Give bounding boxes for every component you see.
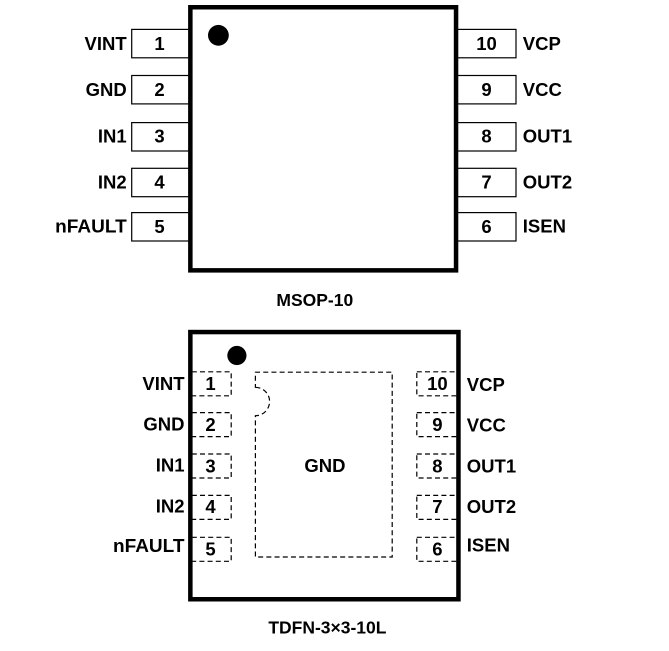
svg-text:nFAULT: nFAULT [113, 535, 185, 556]
svg-text:1: 1 [154, 33, 164, 54]
svg-text:8: 8 [432, 455, 442, 476]
svg-text:nFAULT: nFAULT [55, 215, 127, 236]
svg-text:7: 7 [432, 496, 442, 517]
svg-text:MSOP-10: MSOP-10 [276, 290, 353, 310]
svg-text:VINT: VINT [85, 33, 128, 54]
svg-text:5: 5 [154, 216, 164, 237]
svg-text:VCC: VCC [523, 79, 562, 100]
svg-text:8: 8 [481, 126, 491, 147]
svg-text:7: 7 [481, 172, 491, 193]
svg-text:9: 9 [432, 414, 442, 435]
svg-text:4: 4 [205, 496, 216, 517]
svg-text:5: 5 [205, 539, 215, 560]
svg-text:VCC: VCC [467, 415, 506, 436]
svg-text:OUT1: OUT1 [467, 455, 516, 476]
svg-text:3: 3 [154, 126, 164, 147]
svg-text:4: 4 [154, 172, 165, 193]
svg-text:VCP: VCP [467, 374, 505, 395]
svg-text:IN2: IN2 [156, 495, 185, 516]
svg-text:GND: GND [86, 79, 127, 100]
svg-text:GND: GND [304, 455, 345, 476]
svg-text:IN2: IN2 [98, 172, 127, 193]
svg-text:ISEN: ISEN [523, 215, 566, 236]
svg-text:3: 3 [205, 455, 215, 476]
svg-text:2: 2 [154, 79, 164, 100]
svg-text:VINT: VINT [142, 373, 185, 394]
svg-text:10: 10 [427, 373, 448, 394]
svg-text:1: 1 [205, 373, 215, 394]
svg-text:6: 6 [481, 216, 491, 237]
svg-text:6: 6 [432, 539, 442, 560]
svg-text:OUT1: OUT1 [523, 126, 572, 147]
svg-text:OUT2: OUT2 [467, 496, 516, 517]
svg-text:10: 10 [476, 33, 497, 54]
svg-text:TDFN-3×3-10L: TDFN-3×3-10L [268, 617, 386, 637]
svg-text:IN1: IN1 [156, 455, 185, 476]
svg-text:GND: GND [143, 413, 184, 434]
svg-text:9: 9 [481, 79, 491, 100]
svg-text:OUT2: OUT2 [523, 172, 572, 193]
svg-text:VCP: VCP [523, 33, 561, 54]
svg-text:ISEN: ISEN [467, 534, 510, 555]
svg-text:IN1: IN1 [98, 126, 127, 147]
svg-text:2: 2 [205, 414, 215, 435]
